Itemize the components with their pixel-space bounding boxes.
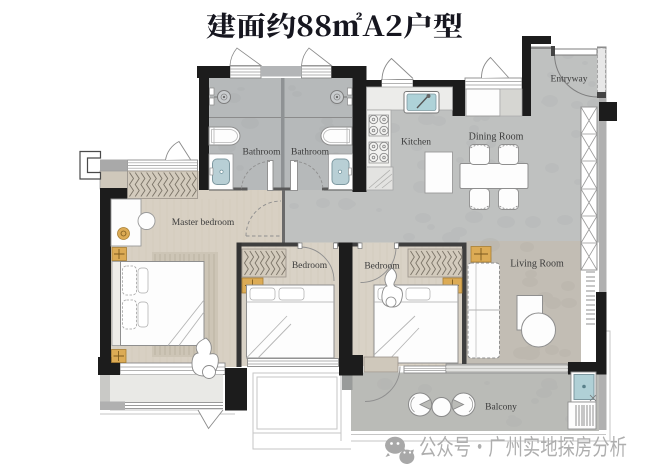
svg-text:Master bedroom: Master bedroom [172,218,235,228]
svg-text:Bedroom: Bedroom [364,262,400,272]
svg-text:Balcony: Balcony [485,403,517,413]
svg-text:Living Room: Living Room [510,259,564,270]
svg-text:Kitchen: Kitchen [401,138,431,148]
svg-text:Entryway: Entryway [551,75,588,85]
svg-text:Bathroom: Bathroom [243,148,282,158]
svg-text:Bedroom: Bedroom [292,261,328,271]
svg-text:Bathroom: Bathroom [291,148,330,158]
svg-text:Dining Room: Dining Room [469,132,524,143]
